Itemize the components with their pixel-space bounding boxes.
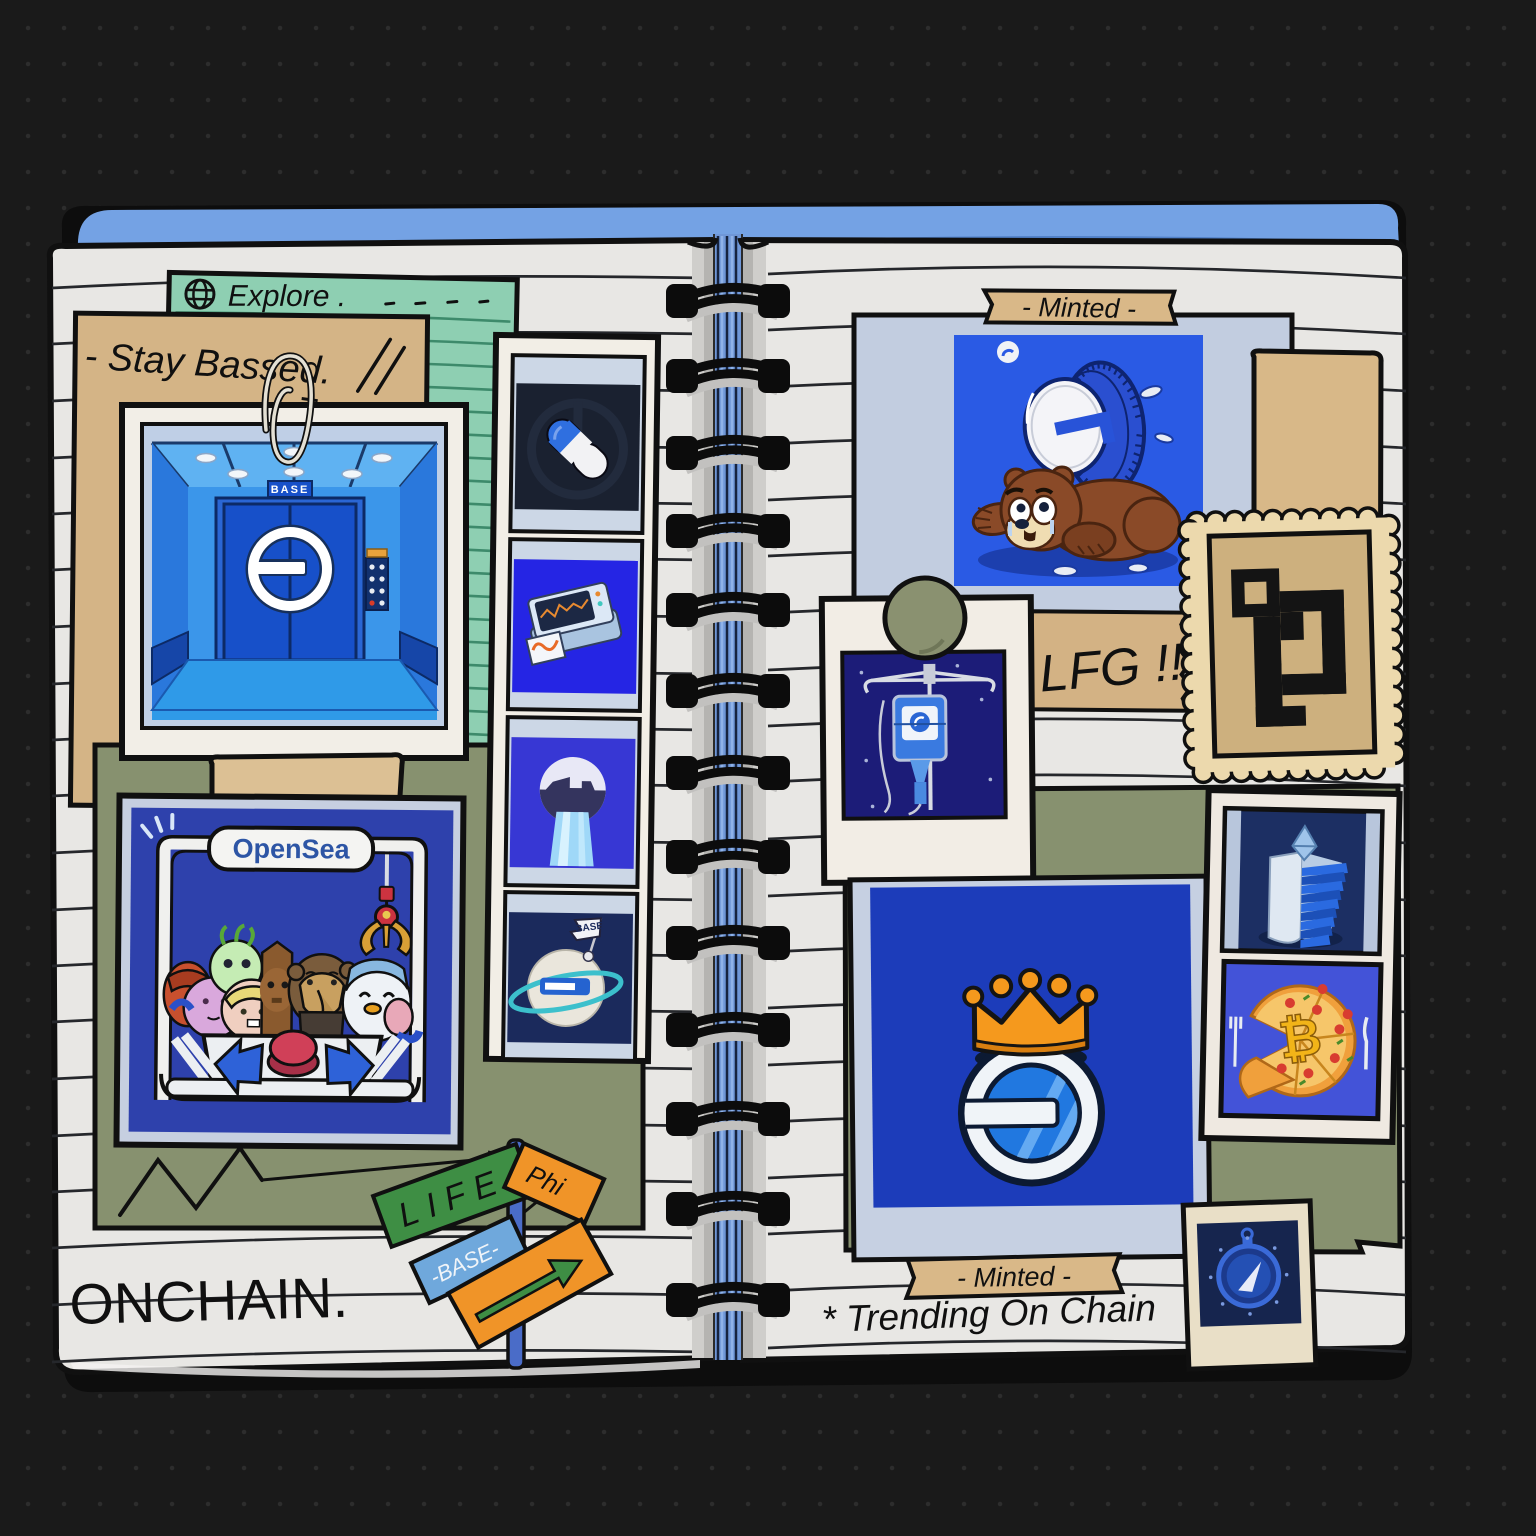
svg-text:₿: ₿ <box>1276 1008 1325 1071</box>
svg-text:BASE: BASE <box>271 484 310 496</box>
svg-text:Explore .: Explore . <box>228 280 347 313</box>
svg-text:ONCHAIN.: ONCHAIN. <box>69 1266 349 1337</box>
svg-text:- Minted -: - Minted - <box>1022 292 1137 324</box>
svg-text:- Minted -: - Minted - <box>957 1261 1072 1293</box>
svg-text:OpenSea: OpenSea <box>232 833 350 864</box>
